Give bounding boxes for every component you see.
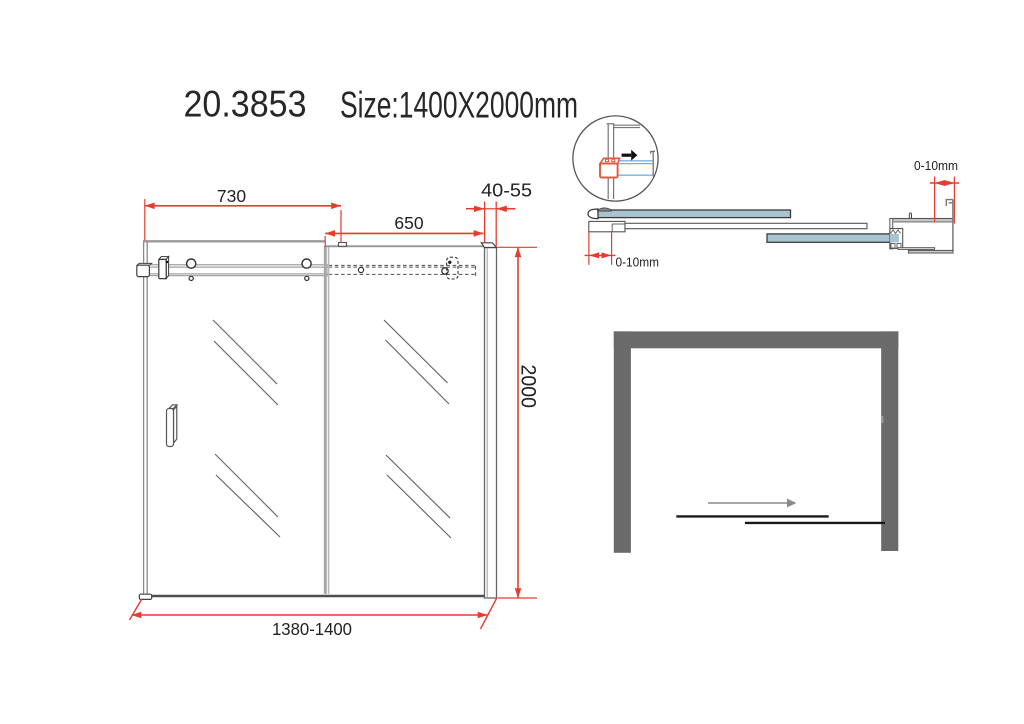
svg-text:Size:1400X2000mm: Size:1400X2000mm [340, 85, 578, 126]
svg-text:0-10mm: 0-10mm [616, 255, 660, 270]
svg-text:730: 730 [217, 186, 246, 206]
svg-text:2000: 2000 [517, 365, 541, 409]
svg-text:20.3853: 20.3853 [184, 84, 307, 125]
svg-text:1380-1400: 1380-1400 [272, 619, 352, 639]
svg-text:0-10mm: 0-10mm [914, 158, 958, 173]
svg-text:650: 650 [394, 213, 423, 233]
svg-text:40-55: 40-55 [481, 180, 532, 200]
